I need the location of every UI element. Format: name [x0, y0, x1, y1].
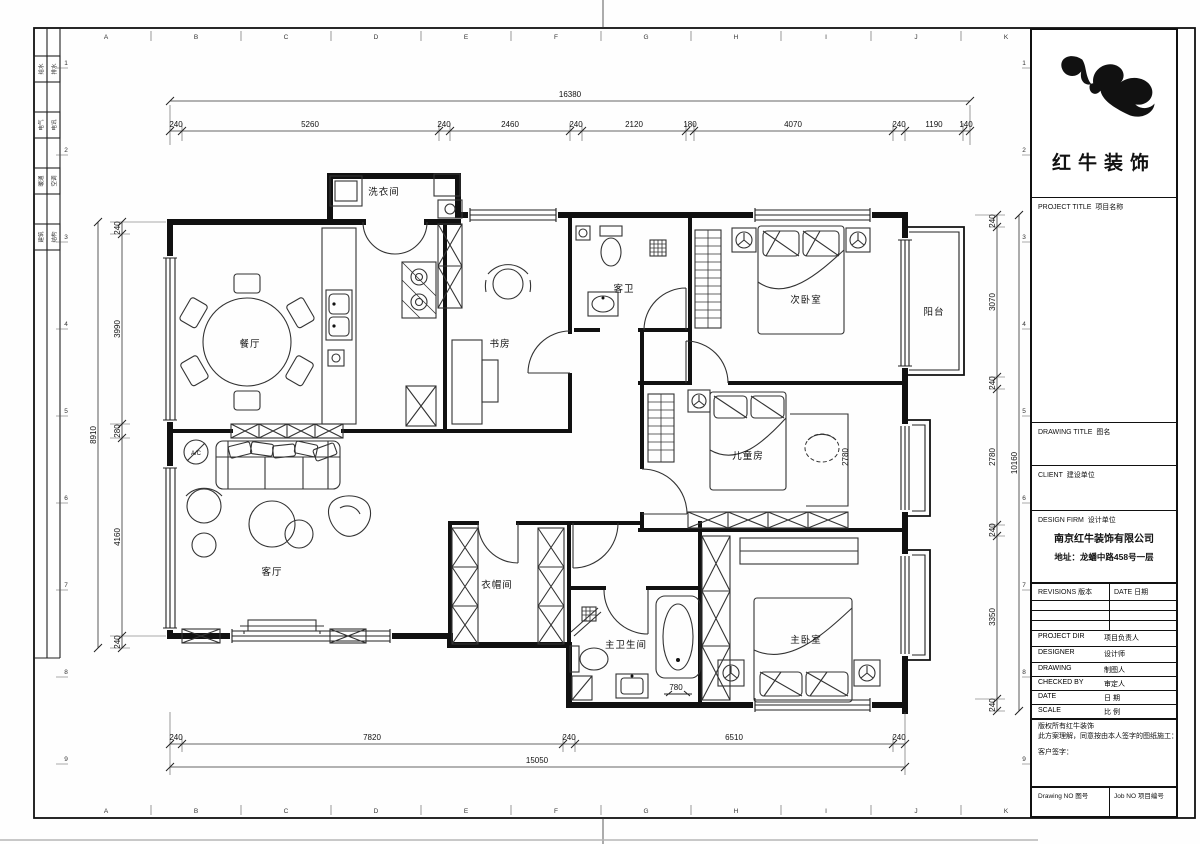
discipline-box: 暖通 空调 [34, 168, 60, 194]
grid-number: 7 [64, 582, 68, 589]
guest-bath-fixtures [576, 226, 666, 316]
row-label-en: DRAWING [1038, 665, 1104, 675]
floorplan-svg: 给水 排水 电气 电讯 暖通 空调 建筑 结构 A B [0, 0, 1200, 844]
second-bedroom-furniture [732, 226, 870, 334]
grid-letters-bottom: A B C D E F G H I J K [104, 805, 1009, 815]
discipline-label: 暖通 [37, 175, 45, 187]
grid-letter: G [643, 808, 648, 815]
dim-total-right: 10160 [1010, 451, 1019, 474]
second-bedroom-door [686, 341, 728, 383]
grid-letter: J [914, 808, 917, 815]
dim-seg: 4070 [784, 120, 802, 129]
copyright-line2: 此方案理解，同意按由本人签字的图纸施工： [1038, 732, 1178, 742]
dim-seg: 3350 [988, 608, 997, 626]
dim-seg: 240 [113, 635, 122, 649]
grid-letter: D [374, 34, 379, 41]
grid-letter: C [284, 34, 289, 41]
revisions-header: REVISIONS 版本 [1038, 587, 1092, 597]
grid-number: 9 [1022, 756, 1026, 763]
row-label-en: DATE [1038, 693, 1104, 703]
dimension-top: 16380 240 5260 240 2460 240 2120 180 407… [166, 90, 974, 145]
grid-number: 5 [64, 408, 68, 415]
discipline-label: 给水 [37, 63, 45, 75]
discipline-label: 电讯 [50, 119, 58, 131]
grid-number: 3 [1022, 234, 1026, 241]
dim-total-top: 16380 [559, 90, 582, 99]
grid-number: 8 [64, 669, 68, 676]
grid-number: 6 [1022, 495, 1026, 502]
dim-seg: 1190 [925, 120, 943, 129]
company-logo-bull-icon [1051, 48, 1161, 126]
room-label-study: 书房 [489, 338, 510, 350]
dim-seg: 240 [113, 221, 122, 235]
grid-letter: C [284, 808, 289, 815]
dimension-right: 10160 240 3070 240 2780 240 3350 240 [975, 211, 1023, 715]
client-label-en: CLIENT [1038, 472, 1063, 479]
kids-wardrobe [688, 512, 848, 528]
titleblock-row: PROJECT DIR项目负责人 [1032, 630, 1176, 643]
row-label-en: SCALE [1038, 707, 1104, 717]
dim-seg: 3070 [988, 293, 997, 311]
date-header: DATE 日期 [1114, 587, 1148, 597]
guest-bath-door [644, 288, 686, 330]
cloakroom-door [478, 523, 518, 563]
opening-lintel [231, 424, 343, 438]
grid-letter: F [554, 808, 558, 815]
kitchen-cabinet [406, 224, 462, 426]
titleblock-row: DRAWING制图人 [1032, 662, 1176, 675]
grid-letter: K [1004, 34, 1009, 41]
dim-seg: 240 [988, 214, 997, 228]
discipline-label: 排水 [50, 63, 58, 75]
grid-number: 2 [64, 147, 68, 154]
dim-seg: 240 [988, 698, 997, 712]
grid-letter: K [1004, 808, 1009, 815]
dim-seg: 240 [562, 733, 576, 742]
dim-total-bottom: 15050 [526, 756, 549, 765]
dim-seg: 2120 [625, 120, 643, 129]
grid-number: 4 [64, 321, 68, 328]
row-label-cn: 审定人 [1104, 679, 1125, 689]
discipline-label: 结构 [50, 231, 58, 243]
grid-letter: E [464, 34, 469, 41]
dim-seg: 180 [683, 120, 697, 129]
design-firm-label-cn: 设计单位 [1088, 517, 1116, 524]
grid-letter: E [464, 808, 469, 815]
grid-number: 5 [1022, 408, 1026, 415]
discipline-box: 建筑 结构 [34, 224, 60, 250]
dimension-left: 8910 240 3990 280 4160 240 [89, 218, 166, 652]
room-label-kids-room: 儿童房 [732, 450, 764, 462]
dim-seg: 5260 [301, 120, 319, 129]
dim-inner-kids: 2780 [841, 448, 850, 466]
kitchen-counter [322, 228, 436, 424]
copyright-line1: 版权所有红牛装饰 [1038, 722, 1094, 732]
project-title-label-cn: 项目名称 [1095, 204, 1123, 211]
master-bedroom-furniture [718, 538, 880, 702]
discipline-label: 空调 [50, 175, 58, 187]
discipline-box: 电气 电讯 [34, 112, 60, 138]
row-label-en: CHECKED BY [1038, 679, 1104, 689]
row-label-cn: 项目负责人 [1104, 633, 1139, 643]
casework [182, 224, 848, 700]
dim-seg: 4160 [113, 528, 122, 546]
room-label-master-bath: 主卫生间 [605, 639, 647, 651]
dim-seg: 2460 [501, 120, 519, 129]
row-label-en: PROJECT DIR [1038, 633, 1104, 643]
room-label-cloakroom: 衣帽间 [481, 579, 513, 591]
signature-label: 客户签字： [1038, 748, 1073, 758]
titleblock-row: DESIGNER设计师 [1032, 646, 1176, 659]
dim-seg: 240 [437, 120, 451, 129]
dim-seg: 280 [113, 424, 122, 438]
grid-number: 6 [64, 495, 68, 502]
project-title-label-en: PROJECT TITLE [1038, 204, 1091, 211]
dim-seg: 240 [169, 120, 183, 129]
dim-seg: 240 [892, 733, 906, 742]
firm-address: 地址：龙蟠中路458号一层 [1032, 551, 1176, 563]
grid-letter: A [104, 808, 109, 815]
drawing-title-label-cn: 图名 [1096, 429, 1110, 436]
grid-number: 1 [1022, 60, 1026, 67]
dim-seg: 6510 [725, 733, 743, 742]
kids-room-door [642, 469, 687, 514]
dim-seg: 240 [988, 376, 997, 390]
dim-seg: 240 [569, 120, 583, 129]
discipline-box: 给水 排水 [34, 56, 60, 82]
drawing-no-label: Drawing NO 图号 [1038, 790, 1088, 800]
discipline-label: 电气 [37, 119, 45, 131]
grid-letter: D [374, 808, 379, 815]
grid-number: 2 [1022, 147, 1026, 154]
room-label-second-bedroom: 次卧室 [790, 294, 822, 306]
design-firm-label-en: DESIGN FIRM [1038, 517, 1084, 524]
entry-double-door [363, 222, 427, 254]
job-no-label: Job NO 项目编号 [1114, 790, 1164, 800]
grid-number: 1 [64, 60, 68, 67]
study-door [528, 331, 570, 373]
drawing-title-label-en: DRAWING TITLE [1038, 429, 1092, 436]
grid-letter: F [554, 34, 558, 41]
grid-letter: B [194, 34, 198, 41]
ac-label: A/C [191, 451, 202, 457]
titleblock-row: DATE日 期 [1032, 690, 1176, 703]
dim-inner-tub: 780 [669, 683, 683, 692]
row-label-en: DESIGNER [1038, 649, 1104, 659]
discipline-label: 建筑 [37, 231, 45, 243]
room-label-dining: 餐厅 [239, 338, 260, 350]
dim-seg: 240 [169, 733, 183, 742]
dim-seg: 140 [959, 120, 973, 129]
master-wardrobe [702, 536, 730, 700]
company-name: 红牛装饰 [1032, 148, 1176, 175]
grid-number: 4 [1022, 321, 1026, 328]
row-label-cn: 设计师 [1104, 649, 1125, 659]
grid-letters-top: A B C D E F G H I J K [104, 31, 1009, 41]
grid-number: 9 [64, 756, 68, 763]
living-room-furniture [186, 441, 371, 634]
room-label-laundry: 洗衣间 [368, 186, 400, 198]
room-label-balcony: 阳台 [923, 306, 944, 318]
grid-letter: I [825, 808, 827, 815]
drawing-sheet: 给水 排水 电气 电讯 暖通 空调 建筑 结构 A B [0, 0, 1200, 844]
master-suite-door [573, 523, 618, 568]
dim-seg: 3990 [113, 320, 122, 338]
master-bath-door [604, 590, 648, 634]
ac-symbol: A/C [184, 440, 208, 464]
grid-letter: A [104, 34, 109, 41]
kids-room-furniture [688, 390, 848, 506]
titleblock-row: CHECKED BY审定人 [1032, 676, 1176, 689]
grid-letter: H [734, 808, 739, 815]
dim-seg: 7820 [363, 733, 381, 742]
grid-number: 3 [64, 234, 68, 241]
room-label-living: 客厅 [261, 566, 282, 578]
doors [363, 222, 728, 634]
titleblock-row: SCALE比 例 [1032, 704, 1176, 717]
grid-letter: H [734, 34, 739, 41]
room-label-master-bedroom: 主卧室 [790, 634, 822, 646]
dim-seg: 240 [988, 523, 997, 537]
dim-seg: 2780 [988, 448, 997, 466]
grid-number: 7 [1022, 582, 1026, 589]
row-label-cn: 日 期 [1104, 693, 1120, 703]
firm-name: 南京红牛装饰有限公司 [1032, 530, 1176, 545]
room-label-guest-bath: 客卫 [613, 283, 634, 295]
title-block: 红牛装饰 PROJECT TITLE 项目名称 DRAWING TITLE 图名… [1030, 28, 1178, 818]
grid-number: 8 [1022, 669, 1026, 676]
grid-letter: G [643, 34, 648, 41]
row-label-cn: 制图人 [1104, 665, 1125, 675]
grid-letter: J [914, 34, 917, 41]
grid-letter: B [194, 808, 198, 815]
grid-letter: I [825, 34, 827, 41]
row-label-cn: 比 例 [1104, 707, 1120, 717]
client-label-cn: 建设单位 [1067, 472, 1095, 479]
dim-seg: 240 [892, 120, 906, 129]
dimension-bottom: 15050 240 7820 240 6510 240 [166, 712, 909, 775]
dim-total-left: 8910 [89, 426, 98, 444]
